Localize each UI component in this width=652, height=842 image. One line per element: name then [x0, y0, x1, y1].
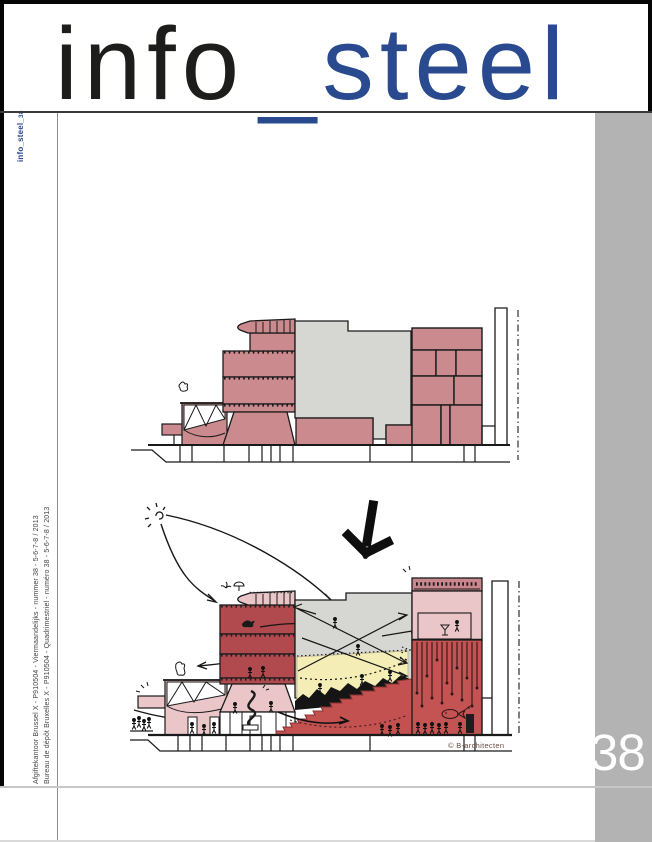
postal-line-fr: Bureau de dépôt Bruxelles X - P910504 - …	[43, 502, 54, 784]
roof-plant-doodles	[221, 582, 244, 591]
building-section-plain-drawing	[130, 288, 550, 480]
magazine-cover: info_steel info_steel_38 Afgiftekantoor …	[0, 0, 652, 842]
right-sidebar: 38	[595, 113, 652, 842]
building-section-annotated-drawing	[130, 488, 550, 768]
spine-label-text: info_steel_	[16, 118, 25, 162]
crowd-left	[132, 717, 151, 731]
page-border-top	[0, 0, 652, 4]
masthead-word-info: info	[55, 6, 245, 121]
postal-line-nl: Afgiftekantoor Brussel X - P910504 - Vie…	[32, 502, 43, 784]
page-border-left	[0, 0, 4, 787]
down-arrow-icon	[348, 505, 388, 553]
masthead-underscore: _	[259, 10, 322, 125]
sun-doodle-icon	[145, 503, 165, 527]
page-border-right	[648, 0, 652, 113]
left-column-rule	[57, 113, 58, 842]
bottom-rule	[0, 786, 652, 788]
postal-info-block: Afgiftekantoor Brussel X - P910504 - Vie…	[32, 502, 54, 784]
credit-line: © B-architecten	[448, 741, 504, 750]
masthead-word-steel: steel	[322, 6, 570, 121]
annotation-curve-arrows	[161, 515, 333, 602]
chimney-doodle	[179, 382, 188, 391]
masthead-title: info_steel	[55, 12, 570, 115]
issue-number-badge: 38	[590, 727, 650, 778]
chimney-doodle	[176, 662, 185, 675]
spine-label: info_steel_38	[16, 112, 28, 162]
